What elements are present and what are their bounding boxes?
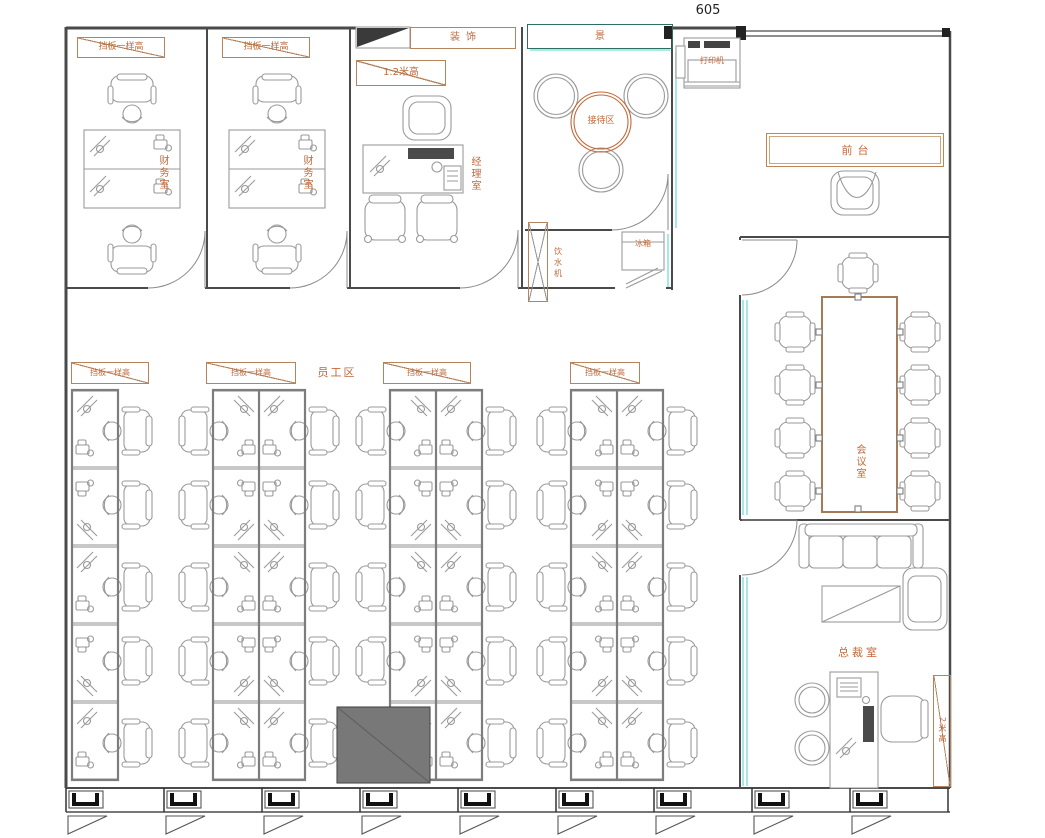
structural-column: [337, 707, 430, 783]
window-band: [66, 788, 948, 834]
meeting-room-label: 会议室: [851, 428, 867, 496]
reception-area-label: 接待区: [579, 115, 623, 128]
partition-note-finance-1: 挡板一样高: [77, 37, 165, 58]
printer-label: 打印机: [692, 55, 732, 67]
decoration-box: 装饰: [410, 27, 516, 49]
staff-area-label: 员工区: [312, 364, 362, 380]
room-number: 605: [686, 2, 730, 18]
partition-note-bank-1: 挡板一样高: [71, 362, 149, 384]
partition-note-bank-4: 挡板一样高: [570, 362, 640, 384]
finance-room-1-label: 财务室: [155, 143, 169, 203]
front-desk-chair: [831, 171, 879, 215]
front-desk: 前台: [766, 133, 944, 167]
finance-room-2-label: 财务室: [299, 143, 313, 203]
plan-linework: [0, 0, 1045, 838]
manager-room-label: 经理室: [467, 146, 481, 202]
president-room-label: 总裁室: [827, 645, 891, 660]
cabinet-2m-high: 2米高: [933, 675, 951, 787]
fridge-label: 冰箱: [627, 238, 659, 249]
partition-note-bank-2: 挡板一样高: [206, 362, 296, 384]
partition-note-1-2m: 1.2米高: [356, 60, 446, 86]
view-box: 景: [527, 24, 673, 49]
floor-plan: 605 挡板一样高 挡板一样高 1.2米高 装饰 景 财务室 财务室 经理室 接…: [0, 0, 1045, 838]
reception-furniture: [534, 74, 668, 192]
partition-note-finance-2: 挡板一样高: [222, 37, 310, 58]
water-dispenser-cabinet: [528, 222, 548, 302]
partition-note-bank-3: 挡板一样高: [383, 362, 471, 384]
water-dispenser-label: 饮水机: [551, 234, 564, 292]
